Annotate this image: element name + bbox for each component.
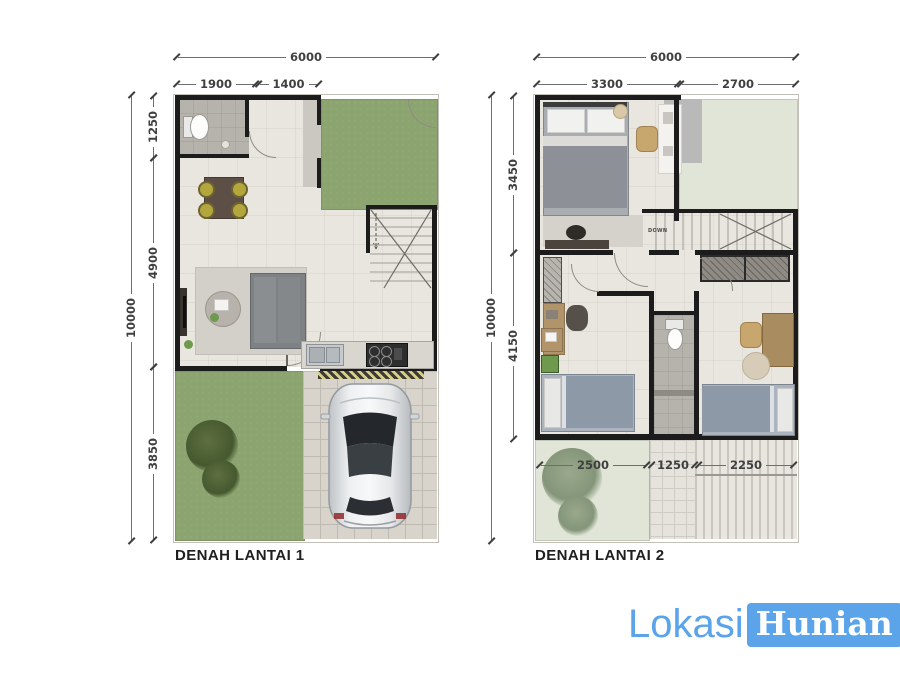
dim-p1-height-seg2: 4900 bbox=[146, 158, 160, 367]
plan2-balcony-tiles bbox=[649, 440, 696, 539]
dim-label: 1900 bbox=[196, 77, 236, 91]
dim-label: 10000 bbox=[484, 294, 498, 342]
dim-tick bbox=[792, 80, 799, 87]
chair-icon bbox=[636, 126, 658, 152]
gate-icon bbox=[318, 371, 424, 379]
wall bbox=[674, 95, 679, 221]
blanket bbox=[562, 376, 633, 428]
sofa-cushion bbox=[254, 277, 276, 343]
wall bbox=[535, 95, 681, 100]
dim-tick bbox=[487, 537, 494, 544]
office-chair-icon bbox=[566, 305, 588, 331]
stairs-icon bbox=[646, 213, 792, 250]
dim-p1-width-seg2: 1400 bbox=[257, 77, 320, 91]
dim-label: 2250 bbox=[726, 458, 766, 472]
dim-tick bbox=[432, 53, 439, 60]
plan2-roof-stripes bbox=[695, 440, 797, 539]
pillow bbox=[544, 378, 561, 428]
wall bbox=[695, 250, 795, 255]
dim-p2-height-seg1: 3450 bbox=[506, 96, 520, 253]
stairs-down-label: DOWN bbox=[648, 228, 667, 234]
wall bbox=[539, 250, 613, 255]
blanket bbox=[543, 146, 627, 208]
wardrobe-icon bbox=[543, 257, 562, 303]
desk-items bbox=[546, 310, 558, 319]
burner bbox=[369, 356, 380, 367]
bed-sheet bbox=[543, 136, 627, 146]
dim-label: 1250 bbox=[653, 458, 693, 472]
dim-tick bbox=[149, 536, 156, 543]
dim-p1-width-total: 6000 bbox=[175, 50, 437, 64]
dim-p2-bottom-seg3: 2250 bbox=[697, 458, 795, 472]
dim-label: 10000 bbox=[124, 294, 138, 342]
chair-icon bbox=[231, 202, 248, 219]
tv-icon bbox=[183, 296, 186, 328]
dim-label: 3450 bbox=[506, 155, 520, 195]
stool-icon bbox=[613, 104, 628, 119]
blanket-fold bbox=[562, 376, 566, 428]
plan1-title: DENAH LANTAI 1 bbox=[175, 547, 305, 564]
floor-drain-icon bbox=[221, 140, 230, 149]
lokasi-hunian-logo: Lokasi Hunian bbox=[628, 602, 900, 647]
dim-p2-height-seg2: 4150 bbox=[506, 253, 520, 439]
dim-p1-height-seg1: 1250 bbox=[146, 96, 160, 158]
chair-icon bbox=[198, 181, 215, 198]
pillow bbox=[547, 109, 585, 133]
bush-icon bbox=[202, 460, 240, 498]
toilet-icon bbox=[190, 114, 209, 140]
burner bbox=[381, 356, 392, 367]
wardrobe-icon bbox=[744, 255, 790, 282]
dim-label: 4150 bbox=[506, 326, 520, 366]
sink-basin bbox=[326, 347, 340, 363]
wall bbox=[649, 250, 679, 255]
blanket bbox=[702, 386, 774, 432]
round-rug bbox=[742, 352, 770, 380]
dim-p1-height-seg3: 3850 bbox=[146, 367, 160, 540]
dim-tick bbox=[127, 537, 134, 544]
laptop-icon bbox=[545, 332, 557, 342]
dim-label: 2500 bbox=[573, 458, 613, 472]
plant-icon bbox=[541, 355, 559, 373]
wall bbox=[642, 209, 797, 213]
dim-tick bbox=[509, 435, 516, 442]
plant-icon bbox=[184, 340, 193, 349]
sofa-cushion bbox=[278, 277, 300, 343]
desk-items bbox=[663, 146, 673, 156]
toilet-icon bbox=[667, 328, 683, 350]
logo-text-hunian: Hunian bbox=[747, 603, 900, 647]
chair-icon bbox=[198, 202, 215, 219]
sink-basin bbox=[309, 347, 325, 363]
dim-label: 1400 bbox=[269, 77, 309, 91]
dim-tick bbox=[792, 53, 799, 60]
blanket-fold bbox=[770, 386, 774, 432]
book-icon bbox=[214, 299, 229, 311]
dim-p2-height-total: 10000 bbox=[484, 95, 498, 541]
dim-label: 2700 bbox=[718, 77, 758, 91]
dim-p2-width-seg2: 2700 bbox=[679, 77, 797, 91]
dim-label: 3850 bbox=[146, 434, 160, 474]
dim-tick bbox=[315, 80, 322, 87]
floorplan-image: 6000 1900 1400 10000 1250 4900 3850 bbox=[0, 0, 900, 675]
dim-label: 3300 bbox=[587, 77, 627, 91]
dresser-icon bbox=[545, 240, 609, 249]
plant-icon bbox=[210, 313, 219, 322]
wall bbox=[317, 158, 321, 188]
desk-items bbox=[663, 112, 673, 124]
dim-label: 1250 bbox=[146, 107, 160, 147]
dim-p2-width-total: 6000 bbox=[535, 50, 797, 64]
chair-icon bbox=[231, 181, 248, 198]
stove-panel bbox=[394, 348, 402, 360]
logo-text-lokasi: Lokasi bbox=[628, 602, 744, 647]
dim-p2-width-seg1: 3300 bbox=[535, 77, 679, 91]
dim-p2-bottom-seg2: 1250 bbox=[650, 458, 694, 472]
dim-p2-bottom-seg1: 2500 bbox=[538, 458, 648, 472]
stairs-icon bbox=[370, 209, 432, 289]
dim-p1-height-total: 10000 bbox=[124, 95, 138, 541]
chair-icon bbox=[740, 322, 762, 348]
dim-label: 6000 bbox=[286, 50, 326, 64]
pillow bbox=[777, 388, 793, 432]
shower-curb bbox=[654, 390, 694, 396]
dim-p1-width-seg1: 1900 bbox=[175, 77, 257, 91]
chair-icon bbox=[566, 225, 586, 240]
dim-label: 6000 bbox=[646, 50, 686, 64]
wall bbox=[179, 154, 249, 158]
tree-icon bbox=[558, 496, 598, 536]
car-icon bbox=[320, 381, 420, 531]
dim-label: 4900 bbox=[146, 243, 160, 283]
plan2-title: DENAH LANTAI 2 bbox=[535, 547, 665, 564]
wall bbox=[317, 99, 321, 125]
wall bbox=[597, 291, 654, 296]
wall bbox=[535, 95, 540, 440]
wall bbox=[175, 366, 287, 371]
roof-divider bbox=[695, 474, 797, 476]
